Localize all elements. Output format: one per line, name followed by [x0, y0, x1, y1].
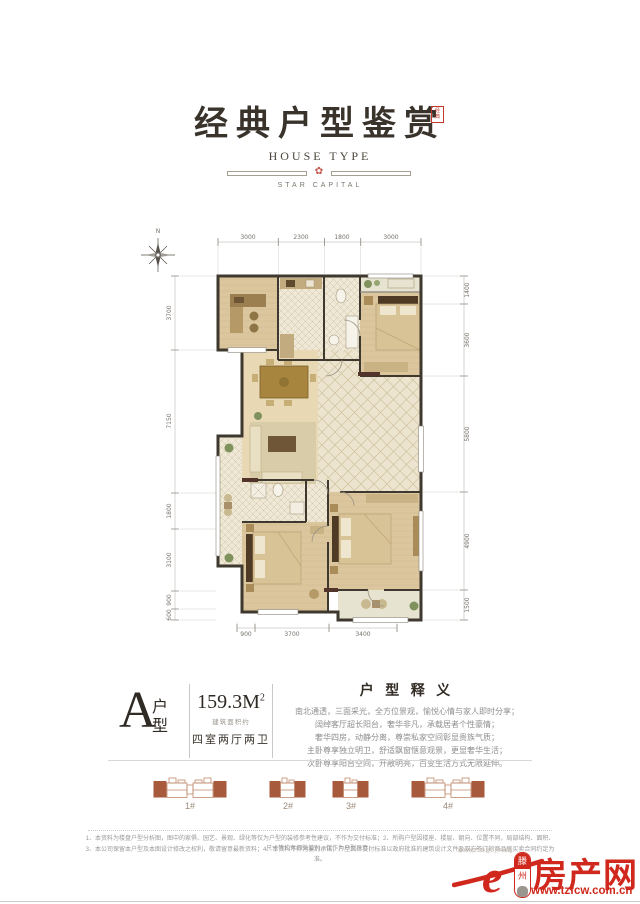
logo-city-char-1: 滕: [515, 853, 530, 869]
interpretation-line: 次卧尊享阳台空间，开敞明亮，百变生活方式无限延伸。: [277, 757, 537, 770]
building-icon-3: [332, 776, 369, 798]
page-bottom-rule: [0, 901, 640, 902]
compass-north-label: N: [156, 228, 161, 235]
dim-top-4: 3000: [383, 234, 398, 241]
compass-icon: [141, 238, 175, 272]
living-room-furniture: [250, 412, 316, 484]
interpretation-line: 奢华四房，动静分离，尊崇私家空间彰显贵族气质；: [277, 731, 537, 744]
dim-left-6: 600: [166, 609, 173, 621]
area-note: 建筑面积约: [190, 716, 272, 726]
logo-pill-foot: [517, 886, 528, 898]
interpretation-title: 户 型 释 义: [277, 680, 537, 700]
area-column: 159.3M2 建筑面积约 四室两厅两卫: [190, 691, 272, 747]
interpretation-section: 户 型 释 义 南北通透，三面采光，全方位景观，愉悦心情与家人即时分享； 阔绰客…: [277, 680, 537, 770]
building-icon-1: [153, 776, 227, 798]
interpretation-line: 主卧尊享独立明卫，舒适飘窗惬意观景，更显奢华生活；: [277, 744, 537, 757]
unit-layout: 四室两厅两卫: [190, 731, 272, 747]
dim-top-1: 3000: [240, 234, 255, 241]
interpretation-line: 南北通透，三面采光，全方位景观，愉悦心情与家人即时分享；: [277, 705, 537, 718]
divider-segment-right: [331, 171, 411, 176]
dim-bottom-1: 900: [240, 631, 252, 638]
dim-top-2: 2300: [293, 234, 308, 241]
plan-body: [216, 274, 424, 623]
brochure-page: 经典户型鉴赏 经 典 HOUSE TYPE ✿ STAR CAPITAL: [0, 0, 640, 904]
dim-left-5: 900: [166, 594, 173, 606]
logo-city-char-2: 州: [515, 869, 530, 885]
dim-bottom-2: 3700: [284, 631, 299, 638]
floor-plan: N: [140, 225, 485, 655]
building-icon-4: [411, 776, 485, 798]
unit-letter: A: [119, 686, 157, 736]
title-seal-stamp: 经 典: [431, 106, 444, 123]
info-bottom-rule: [108, 760, 532, 761]
dim-top-3: 1800: [334, 234, 349, 241]
footer-rule: [88, 830, 552, 831]
building-label-4: 4#: [433, 801, 463, 811]
info-divider-2: [272, 684, 273, 758]
page-title: 经典户型鉴赏: [0, 96, 640, 145]
dim-bottom-3: 3400: [355, 631, 370, 638]
logo-city-pill: 滕 州: [514, 852, 531, 898]
area-superscript: 2: [260, 692, 265, 703]
building-label-2: 2#: [273, 801, 303, 811]
seal-char-2: 典: [432, 114, 443, 120]
logo-site-url: www.tzfcw.com.cn: [531, 885, 632, 897]
dim-left-1: 3700: [166, 305, 173, 320]
unit-type-char-2: 型: [152, 712, 168, 736]
unit-area: 159.3M2: [190, 691, 272, 714]
page-subtitle: HOUSE TYPE: [0, 149, 640, 164]
dim-left-3: 1800: [166, 503, 173, 518]
dim-left-4: 3100: [166, 552, 173, 567]
building-label-1: 1#: [175, 801, 205, 811]
dim-left-2: 7150: [166, 413, 173, 428]
dim-right-4: 4900: [464, 533, 471, 548]
dim-right-1: 1400: [464, 282, 471, 297]
dim-right-3: 5800: [464, 426, 471, 441]
building-icon-2: [269, 776, 306, 798]
interpretation-line: 阔绰客厅超长阳台，奢华非凡，承载居者个性豪情；: [277, 718, 537, 731]
building-label-3: 3#: [336, 801, 366, 811]
dim-right-5: 1500: [464, 597, 471, 612]
brand-caption: STAR CAPITAL: [0, 182, 640, 189]
title-divider: ✿: [227, 169, 411, 177]
dim-right-2: 3600: [464, 332, 471, 347]
